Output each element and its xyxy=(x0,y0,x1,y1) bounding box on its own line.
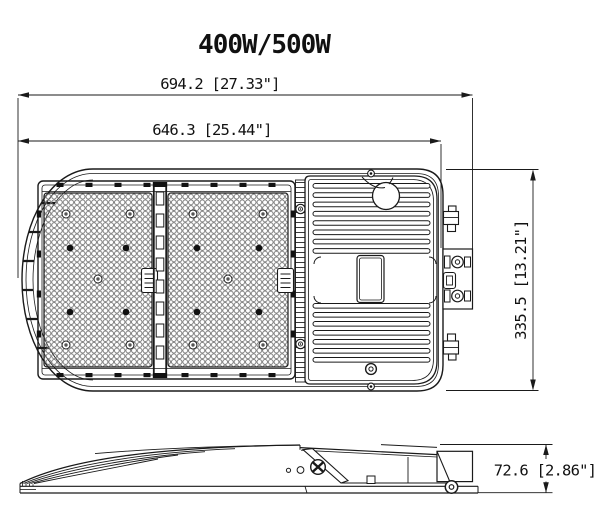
led-panel-left xyxy=(44,193,158,367)
heatsink-strip xyxy=(296,180,306,382)
technical-drawing-page: 400W/500W 694.2 [27.33"] 646.3 [25.44"] xyxy=(0,0,605,526)
bracket-tab-bottom xyxy=(444,334,459,360)
bracket-tab-top xyxy=(444,206,459,232)
indicator-dot-small xyxy=(286,468,290,472)
breather-hole xyxy=(366,364,377,375)
indicator-dot-large xyxy=(297,467,304,474)
bracket-bolt-bottom xyxy=(445,290,471,302)
panel-latch xyxy=(278,269,294,293)
dim-height-label: 72.6 [2.86"] xyxy=(494,462,596,480)
arm-hood-edge xyxy=(381,445,437,448)
fixture-dimension-drawing: 400W/500W 694.2 [27.33"] 646.3 [25.44"] xyxy=(0,0,605,526)
drawing-title: 400W/500W xyxy=(198,30,331,60)
mounting-bracket xyxy=(443,206,473,360)
side-view xyxy=(20,445,478,494)
mounting-arm-side xyxy=(437,451,473,493)
side-screw-and-indicators xyxy=(286,460,325,475)
panel-latch xyxy=(142,269,158,293)
dim-width-label: 335.5 [13.21"] xyxy=(512,220,530,339)
led-panel-right xyxy=(168,193,294,367)
driver-cover-plate xyxy=(357,256,384,303)
cable-gland xyxy=(367,476,375,484)
side-profile xyxy=(20,445,478,493)
dim-overall-length-label: 694.2 [27.33"] xyxy=(160,75,279,93)
driver-compartment xyxy=(305,170,437,390)
top-view xyxy=(22,169,473,391)
dim-housing-length-label: 646.3 [25.44"] xyxy=(152,121,271,139)
bracket-center-stop xyxy=(444,273,456,289)
bracket-bolt-top xyxy=(445,256,471,268)
